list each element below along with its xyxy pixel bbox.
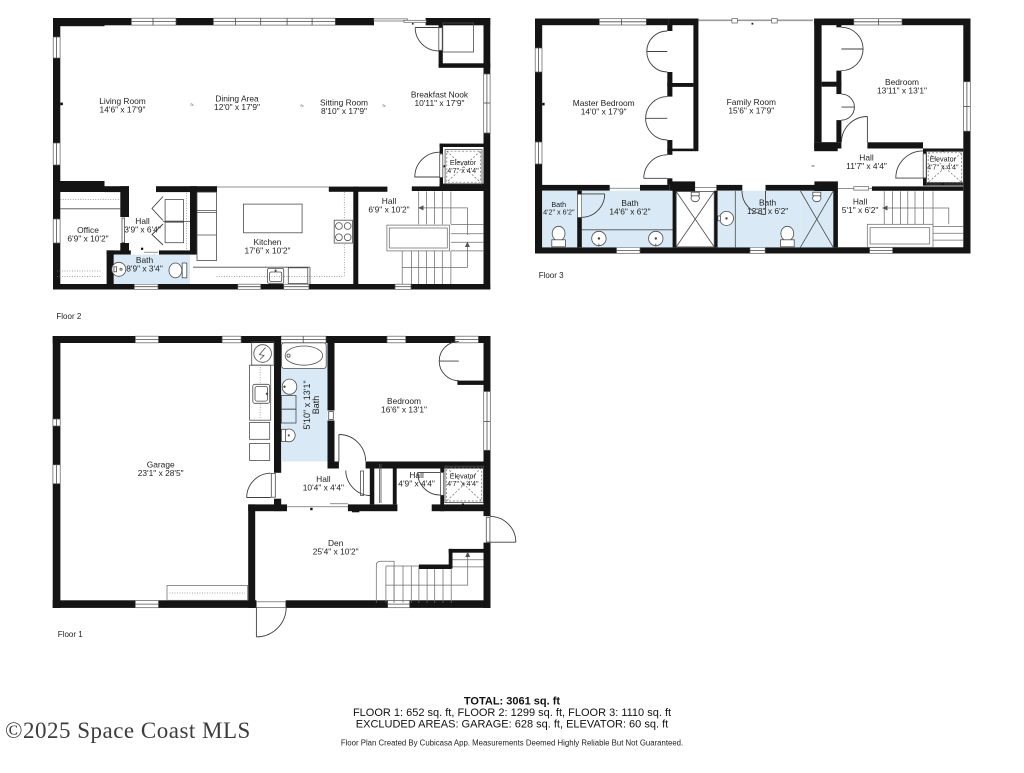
- svg-text:Family Room15'6" x 17'9": Family Room15'6" x 17'9": [727, 97, 776, 116]
- svg-text:©2025 Space Coast MLS: ©2025 Space Coast MLS: [5, 718, 251, 743]
- svg-text:Bath: Bath: [311, 396, 321, 415]
- svg-text:5'10" x 13'1": 5'10" x 13'1": [302, 380, 312, 429]
- svg-text:Floor 2: Floor 2: [56, 312, 81, 321]
- svg-text:Bedroom16'6" x 13'1": Bedroom16'6" x 13'1": [381, 396, 427, 415]
- svg-text:Floor 3: Floor 3: [539, 271, 564, 280]
- svg-text:Living Room14'6" x 17'9": Living Room14'6" x 17'9": [99, 96, 146, 115]
- svg-text:Elevator4'7" x 4'4": Elevator4'7" x 4'4": [927, 155, 959, 172]
- svg-text:Elevator4'7" x 4'4": Elevator4'7" x 4'4": [447, 158, 479, 175]
- svg-text:Sitting Room8'10" x 17'9": Sitting Room8'10" x 17'9": [320, 98, 368, 117]
- svg-text:Master Bedroom14'0" x 17'9": Master Bedroom14'0" x 17'9": [573, 98, 635, 117]
- svg-text:Floor 1: Floor 1: [58, 630, 83, 639]
- svg-text:Floor Plan Created By Cubicasa: Floor Plan Created By Cubicasa App. Meas…: [341, 739, 683, 748]
- svg-text:Breakfast Nook10'11" x 17'9": Breakfast Nook10'11" x 17'9": [411, 90, 469, 109]
- svg-text:EXCLUDED AREAS: GARAGE: 628 sq: EXCLUDED AREAS: GARAGE: 628 sq. ft, ELEV…: [356, 719, 668, 731]
- svg-text:Dining Area12'0" x 17'9": Dining Area12'0" x 17'9": [214, 94, 260, 113]
- svg-text:FLOOR 1: 652 sq. ft, FLOOR 2:: FLOOR 1: 652 sq. ft, FLOOR 2: 1299 sq. f…: [353, 707, 671, 719]
- svg-text:Elevator4'7" x 4'4": Elevator4'7" x 4'4": [447, 471, 479, 488]
- svg-text:TOTAL: 3061 sq. ft: TOTAL: 3061 sq. ft: [464, 696, 561, 708]
